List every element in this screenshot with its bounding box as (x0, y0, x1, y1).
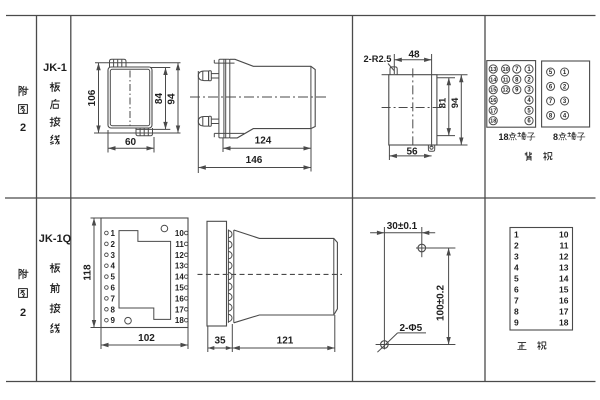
svg-text:94: 94 (167, 93, 178, 105)
svg-text:5: 5 (111, 273, 116, 282)
svg-text:2: 2 (20, 122, 26, 134)
svg-text:13: 13 (559, 263, 569, 273)
svg-text:11: 11 (560, 241, 569, 251)
svg-text:16: 16 (559, 296, 569, 306)
svg-text:9: 9 (111, 316, 116, 325)
svg-text:12: 12 (559, 252, 569, 262)
svg-text:13: 13 (490, 67, 496, 73)
svg-text:9: 9 (514, 318, 519, 328)
svg-text:2: 2 (514, 241, 519, 251)
svg-text:6: 6 (111, 284, 116, 293)
svg-text:81: 81 (438, 97, 449, 108)
svg-text:3: 3 (514, 252, 519, 262)
svg-text:15: 15 (175, 284, 184, 293)
svg-text:14: 14 (559, 274, 569, 284)
svg-text:1: 1 (514, 230, 519, 240)
svg-text:17: 17 (559, 307, 569, 317)
svg-text:30±0.1: 30±0.1 (387, 221, 418, 232)
svg-text:124: 124 (255, 136, 272, 147)
svg-text:10: 10 (502, 67, 508, 73)
svg-text:48: 48 (408, 49, 420, 60)
svg-text:JK-1Q: JK-1Q (39, 233, 72, 245)
svg-text:60: 60 (125, 137, 137, 148)
svg-text:12: 12 (502, 88, 508, 94)
svg-text:146: 146 (246, 155, 263, 166)
svg-text:35: 35 (214, 336, 226, 347)
svg-text:106: 106 (87, 89, 98, 106)
svg-text:16: 16 (490, 98, 496, 104)
svg-text:18: 18 (490, 119, 496, 125)
svg-text:8: 8 (111, 305, 116, 314)
svg-text:7: 7 (514, 296, 519, 306)
svg-text:17: 17 (490, 108, 496, 114)
svg-text:15: 15 (490, 88, 496, 94)
svg-text:2-R2.5: 2-R2.5 (364, 54, 392, 64)
svg-text:3: 3 (111, 251, 116, 260)
svg-text:14: 14 (175, 273, 184, 282)
svg-text:JK-1: JK-1 (43, 62, 67, 74)
svg-text:121: 121 (277, 336, 294, 347)
svg-text:4: 4 (514, 263, 519, 273)
svg-text:11: 11 (175, 240, 184, 249)
svg-text:18: 18 (175, 316, 184, 325)
svg-text:4: 4 (111, 262, 116, 271)
svg-text:2: 2 (111, 240, 116, 249)
svg-text:102: 102 (138, 333, 155, 344)
svg-text:6: 6 (514, 285, 519, 295)
svg-text:11: 11 (503, 77, 509, 83)
svg-text:56: 56 (406, 146, 418, 157)
svg-text:118: 118 (83, 264, 94, 281)
svg-text:8: 8 (514, 307, 519, 317)
svg-text:7: 7 (111, 294, 116, 303)
svg-text:18: 18 (499, 132, 509, 142)
svg-text:5: 5 (514, 274, 519, 284)
svg-text:2: 2 (20, 307, 26, 319)
svg-text:8: 8 (553, 132, 558, 142)
svg-text:16: 16 (175, 294, 184, 303)
svg-text:100±0.2: 100±0.2 (436, 285, 447, 322)
svg-text:84: 84 (154, 93, 165, 105)
svg-text:15: 15 (559, 285, 569, 295)
svg-text:2-Φ5: 2-Φ5 (400, 323, 423, 334)
svg-text:12: 12 (175, 251, 184, 260)
svg-text:18: 18 (559, 318, 569, 328)
svg-text:1: 1 (111, 229, 116, 238)
svg-text:14: 14 (490, 77, 497, 83)
svg-text:13: 13 (175, 262, 184, 271)
svg-text:10: 10 (175, 229, 184, 238)
svg-text:10: 10 (559, 230, 569, 240)
svg-text:17: 17 (175, 305, 184, 314)
svg-text:94: 94 (450, 97, 461, 108)
